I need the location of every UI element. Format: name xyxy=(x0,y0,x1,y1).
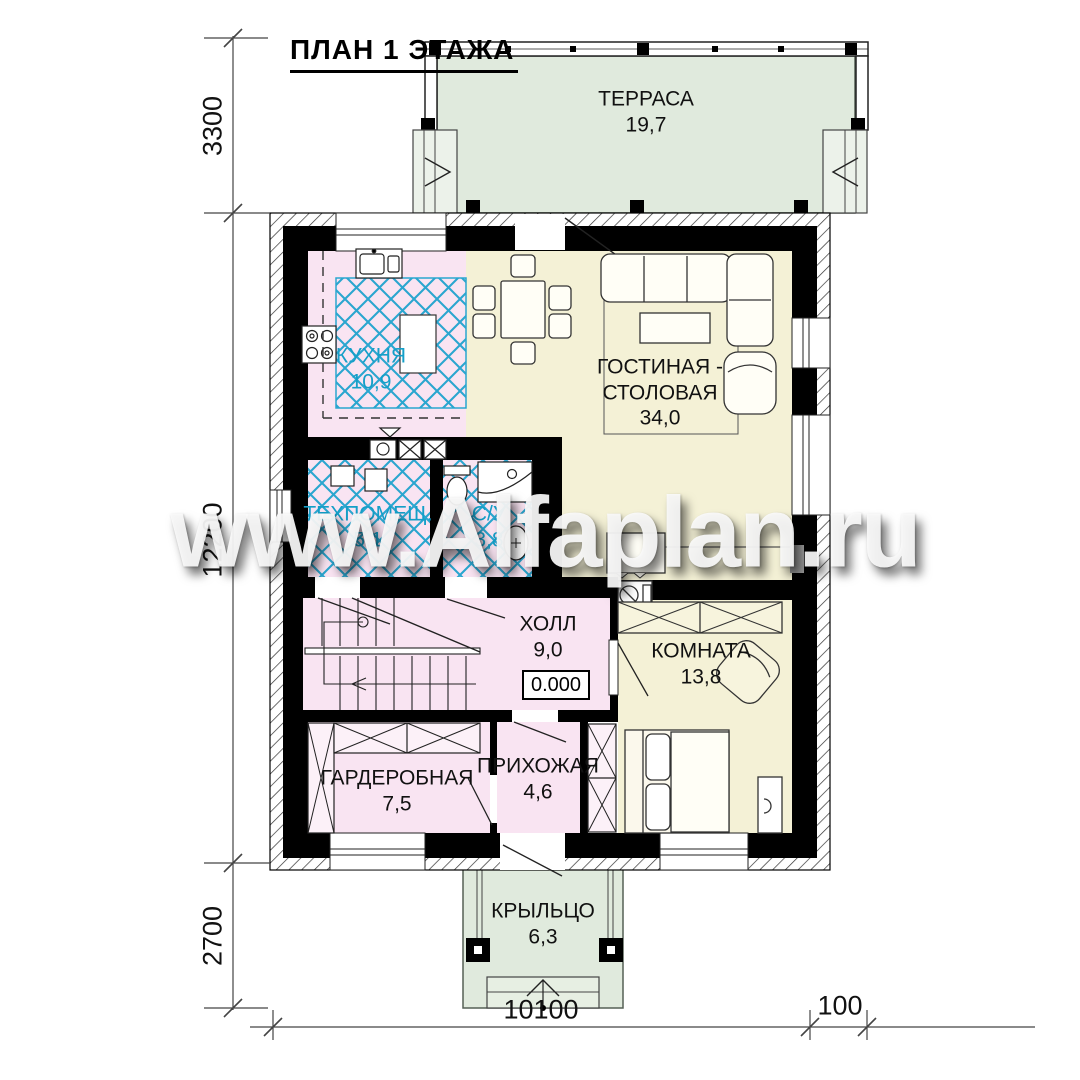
wardrobe-label: ГАРДЕРОБНАЯ7,5 xyxy=(321,765,474,816)
terrace-steps-right xyxy=(823,130,867,213)
wardrobe-closet-top xyxy=(334,723,480,753)
bedroom-label: КОМНАТА13,8 xyxy=(651,638,751,689)
bed-icon xyxy=(625,730,729,833)
hall-label: ХОЛЛ9,0 xyxy=(520,611,577,662)
sink-icon xyxy=(356,249,402,278)
dresser-icon xyxy=(758,777,782,833)
kitchen-label: КУХНЯ10,9 xyxy=(336,343,406,394)
coffee-table xyxy=(640,313,710,343)
watermark: www.Alfaplan.ru xyxy=(170,476,920,591)
dim-10100: 10100 xyxy=(503,995,578,1026)
porch-label: КРЫЛЬЦО6,3 xyxy=(491,898,595,949)
washer-niche xyxy=(370,440,446,459)
bedroom-wardrobe xyxy=(618,602,782,633)
dim-2700: 2700 xyxy=(198,906,229,966)
elevation-mark: 0.000 xyxy=(522,670,590,700)
terrace-label: ТЕРРАСА19,7 xyxy=(598,86,694,137)
dim-100: 100 xyxy=(817,991,862,1022)
terrace-steps-left xyxy=(413,130,457,213)
dim-3300: 3300 xyxy=(198,96,229,156)
entry-label: ПРИХОЖАЯ4,6 xyxy=(477,753,599,804)
armchair-icon xyxy=(724,352,776,414)
floor-plan: ПЛАН 1 ЭТАЖА ТЕРРАСА19,7 КУХНЯ10,9 ГОСТИ… xyxy=(0,0,1080,1080)
stove-icon xyxy=(302,326,336,363)
page-title: ПЛАН 1 ЭТАЖА xyxy=(290,34,518,73)
living-label: ГОСТИНАЯ - СТОЛОВАЯ 34,0 xyxy=(597,355,723,432)
